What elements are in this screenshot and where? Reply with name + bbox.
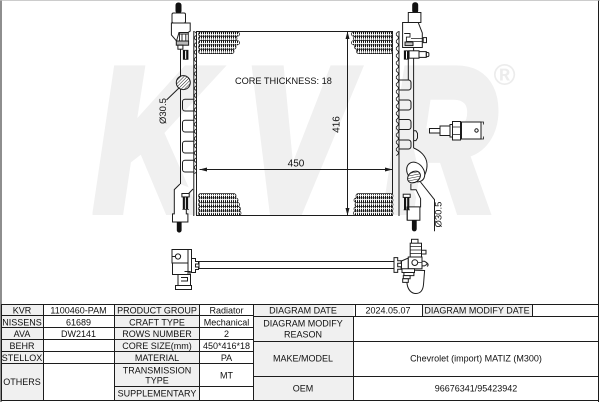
svg-text:TYPE: TYPE <box>145 376 169 386</box>
svg-text:SUPPLEMENTARY: SUPPLEMENTARY <box>118 389 197 399</box>
svg-text:DW2141: DW2141 <box>61 329 96 339</box>
svg-text:96676341/95423942: 96676341/95423942 <box>435 383 518 393</box>
svg-text:PRODUCT GROUP: PRODUCT GROUP <box>117 306 197 316</box>
svg-text:2: 2 <box>224 329 229 339</box>
svg-text:MT: MT <box>220 371 233 381</box>
svg-text:Ø30.5: Ø30.5 <box>434 202 445 228</box>
svg-text:MATERIAL: MATERIAL <box>135 353 179 363</box>
svg-text:DIAGRAM MODIFY: DIAGRAM MODIFY <box>263 319 343 329</box>
svg-text:CRAFT TYPE: CRAFT TYPE <box>129 317 185 327</box>
svg-text:Chevrolet (import) MATIZ (M300: Chevrolet (import) MATIZ (M300) <box>410 354 542 364</box>
svg-text:DIAGRAM DATE: DIAGRAM DATE <box>269 306 337 316</box>
svg-text:KVR: KVR <box>13 306 32 316</box>
svg-text:OTHERS: OTHERS <box>3 377 41 387</box>
svg-text:CORE SIZE(mm): CORE SIZE(mm) <box>122 341 192 351</box>
svg-text:450*416*18: 450*416*18 <box>203 341 250 351</box>
svg-text:MAKE/MODEL: MAKE/MODEL <box>273 354 333 364</box>
svg-text:DIAGRAM MODIFY DATE: DIAGRAM MODIFY DATE <box>424 306 529 316</box>
svg-text:Mechanical: Mechanical <box>204 317 250 327</box>
svg-text:2024.05.07: 2024.05.07 <box>365 306 410 316</box>
svg-text:BEHR: BEHR <box>9 341 35 351</box>
svg-text:Ø30.5: Ø30.5 <box>158 98 169 124</box>
svg-text:TRANSMISSION: TRANSMISSION <box>123 366 192 376</box>
svg-text:NISSENS: NISSENS <box>2 317 42 327</box>
svg-text:CORE THICKNESS: 18: CORE THICKNESS: 18 <box>235 76 332 86</box>
svg-text:OEM: OEM <box>293 383 314 393</box>
svg-text:61689: 61689 <box>66 317 91 327</box>
svg-text:416: 416 <box>332 116 343 133</box>
svg-text:REASON: REASON <box>284 330 322 340</box>
svg-text:ROWS NUMBER: ROWS NUMBER <box>122 329 192 339</box>
svg-text:STELLOX: STELLOX <box>2 353 43 363</box>
svg-text:450: 450 <box>288 159 305 170</box>
svg-text:Radiator: Radiator <box>209 306 243 316</box>
svg-text:1100460-PAM: 1100460-PAM <box>50 306 106 316</box>
svg-text:AVA: AVA <box>14 329 31 339</box>
svg-text:PA: PA <box>221 353 232 363</box>
